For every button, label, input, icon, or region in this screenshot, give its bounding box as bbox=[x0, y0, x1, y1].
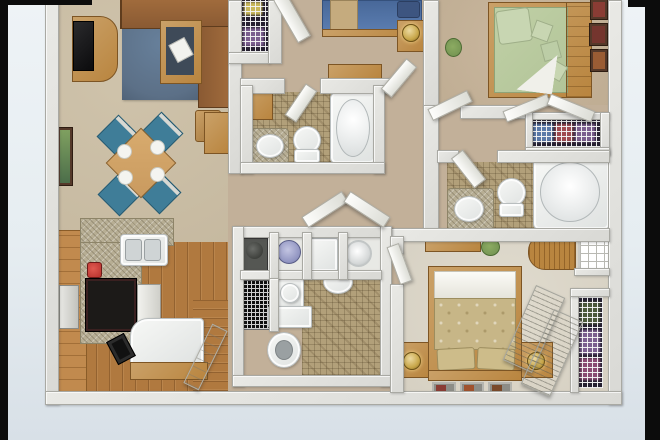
bathroom2-toilet-tank bbox=[499, 203, 524, 217]
console-table bbox=[204, 112, 230, 154]
tv-screen bbox=[73, 21, 94, 71]
sofa-right bbox=[198, 26, 230, 108]
bathroom2-sink bbox=[454, 196, 484, 222]
cooktop bbox=[85, 278, 137, 332]
top-black-strip bbox=[0, 0, 92, 5]
top-right-black-corner bbox=[628, 0, 646, 7]
linen-purple bbox=[575, 124, 595, 142]
wall-bath1-right bbox=[373, 85, 385, 174]
wall-utility-bottom bbox=[232, 375, 392, 387]
plate-4 bbox=[150, 167, 165, 182]
linen-blue bbox=[533, 124, 553, 142]
breakfast-bench bbox=[130, 318, 204, 366]
wall-utility-div3 bbox=[338, 232, 348, 280]
clothes-yellow bbox=[244, 2, 262, 15]
wall-utility-top bbox=[232, 226, 392, 238]
hall-vertical-floor bbox=[383, 78, 423, 228]
floorplan-screenshot bbox=[0, 0, 660, 440]
washer bbox=[277, 240, 301, 264]
gold-closet-clothes-3 bbox=[580, 358, 600, 380]
coffee-maker bbox=[87, 262, 102, 278]
plate-2 bbox=[150, 140, 165, 155]
green-bed-headboard bbox=[566, 2, 592, 98]
wall-exterior-right bbox=[608, 0, 622, 405]
bathroom1-tub-basin bbox=[336, 99, 370, 157]
plate-1 bbox=[117, 144, 132, 159]
blue-bed-tan-band bbox=[330, 0, 358, 32]
gold-closet-clothes-2 bbox=[580, 330, 600, 354]
powder-sink bbox=[280, 283, 300, 303]
left-black-bar bbox=[0, 0, 8, 440]
water-heater bbox=[246, 242, 263, 259]
wall-bath2-top-right bbox=[497, 150, 610, 163]
closet-top-wire-shelf bbox=[240, 0, 268, 52]
plant-green-bedroom bbox=[445, 38, 462, 57]
wall-exterior-left bbox=[45, 0, 59, 405]
sink-basin-left bbox=[125, 239, 142, 261]
wall-exterior-bottom bbox=[45, 391, 622, 405]
wall-divider-lower bbox=[423, 105, 439, 230]
linen-closet-wire bbox=[531, 119, 600, 147]
lamp-gold-left bbox=[403, 352, 421, 370]
gold-bed-footboard bbox=[428, 370, 522, 381]
linen-red bbox=[555, 124, 573, 142]
wall-bedroom-gold-left bbox=[390, 284, 404, 393]
wall-bath1-bottom bbox=[240, 162, 385, 174]
living-wall-art bbox=[58, 128, 72, 185]
gold-bed-duvet bbox=[434, 298, 516, 350]
green-pillow-large bbox=[495, 7, 533, 45]
wall-bath1-left bbox=[240, 85, 253, 174]
green-room-frame-2 bbox=[590, 24, 607, 45]
right-black-bar bbox=[645, 0, 660, 440]
sink-basin-right bbox=[144, 239, 161, 261]
wall-oven bbox=[59, 285, 79, 329]
wall-bath2-bottom bbox=[390, 228, 610, 242]
wall-gold-closet-top bbox=[570, 288, 610, 297]
gold-bed-sheet bbox=[434, 271, 516, 301]
wall-utility-left bbox=[232, 226, 244, 387]
bathroom1-sink bbox=[256, 134, 284, 158]
green-room-frame-3 bbox=[591, 50, 607, 71]
lamp-blue-bedroom bbox=[402, 24, 420, 42]
bathroom2-tub-basin bbox=[540, 162, 600, 222]
wall-window-ledge bbox=[574, 268, 610, 276]
wall-divider-center-right bbox=[423, 0, 439, 107]
wall-utility-left-col bbox=[269, 278, 279, 332]
blue-bed-pillow bbox=[397, 1, 420, 18]
clothes-purple bbox=[243, 28, 264, 46]
gold-closet-clothes-1 bbox=[580, 302, 600, 324]
hvac-vent bbox=[242, 280, 270, 330]
plate-3 bbox=[118, 170, 133, 185]
dryer bbox=[345, 240, 372, 267]
bath3-toilet-bowl bbox=[275, 340, 293, 360]
wall-utility-div1 bbox=[269, 232, 279, 280]
gold-pillow-left bbox=[436, 347, 475, 371]
gold-closet-wire bbox=[577, 296, 603, 388]
wall-closet-bottom bbox=[228, 52, 270, 64]
floorplan bbox=[45, 0, 620, 403]
utility-white-box bbox=[308, 238, 338, 272]
bathroom1-toilet-tank bbox=[294, 149, 320, 163]
green-room-frame-1 bbox=[591, 0, 607, 19]
wall-utility-div2 bbox=[302, 232, 312, 280]
